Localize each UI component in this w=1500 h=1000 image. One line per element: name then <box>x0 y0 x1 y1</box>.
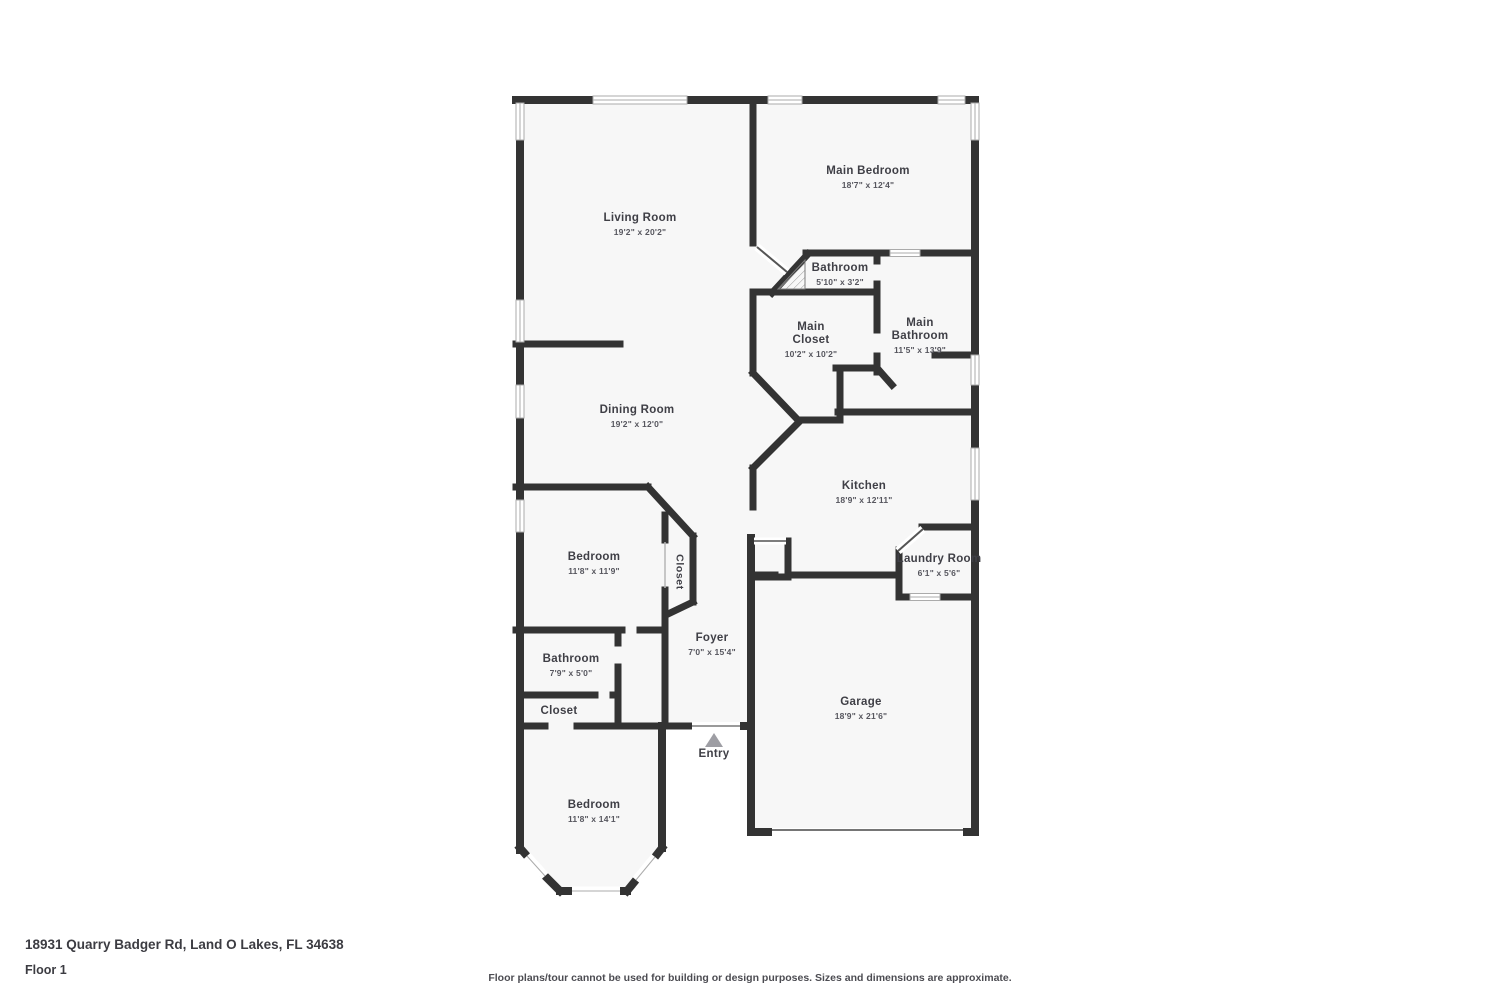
entry-arrow-icon <box>705 733 723 747</box>
floor-plan: Living Room 19'2" x 20'2" Main Bedroom 1… <box>0 0 1500 1000</box>
property-address: 18931 Quarry Badger Rd, Land O Lakes, FL… <box>25 937 344 952</box>
floor-plan-drawing <box>0 0 1500 1000</box>
floor-label: Floor 1 <box>25 963 67 977</box>
disclaimer-text: Floor plans/tour cannot be used for buil… <box>488 972 1011 984</box>
